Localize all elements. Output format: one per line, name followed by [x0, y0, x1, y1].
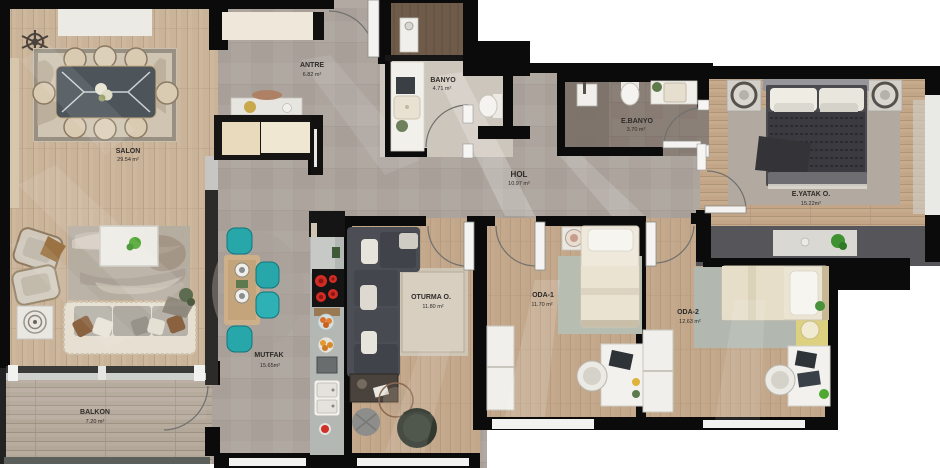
- svg-text:MUTFAK: MUTFAK: [254, 352, 283, 359]
- svg-text:4.71 m²: 4.71 m²: [433, 86, 452, 92]
- svg-text:ODA-1: ODA-1: [532, 292, 554, 299]
- svg-text:ANTRE: ANTRE: [300, 62, 324, 69]
- svg-text:SALON: SALON: [116, 148, 141, 155]
- svg-text:11.70 m²: 11.70 m²: [531, 302, 552, 308]
- svg-text:6.82 m²: 6.82 m²: [303, 72, 322, 78]
- svg-text:HOL: HOL: [511, 170, 528, 179]
- svg-text:E.BANYO: E.BANYO: [621, 118, 653, 125]
- svg-text:11.80 m²: 11.80 m²: [422, 304, 443, 310]
- svg-text:BANYO: BANYO: [430, 77, 456, 84]
- svg-text:E.YATAK O.: E.YATAK O.: [792, 191, 830, 198]
- svg-text:29.54 m²: 29.54 m²: [117, 157, 139, 163]
- svg-text:BALKON: BALKON: [80, 409, 110, 416]
- svg-text:ODA-2: ODA-2: [677, 309, 699, 316]
- svg-text:15.22m²: 15.22m²: [801, 201, 821, 207]
- svg-text:7.20 m²: 7.20 m²: [86, 419, 105, 425]
- svg-text:3.70 m²: 3.70 m²: [627, 127, 646, 133]
- svg-text:15.65m²: 15.65m²: [260, 363, 280, 369]
- svg-text:12.63 m²: 12.63 m²: [679, 319, 701, 325]
- svg-text:OTURMA O.: OTURMA O.: [411, 294, 451, 301]
- svg-text:10.97 m²: 10.97 m²: [508, 181, 530, 187]
